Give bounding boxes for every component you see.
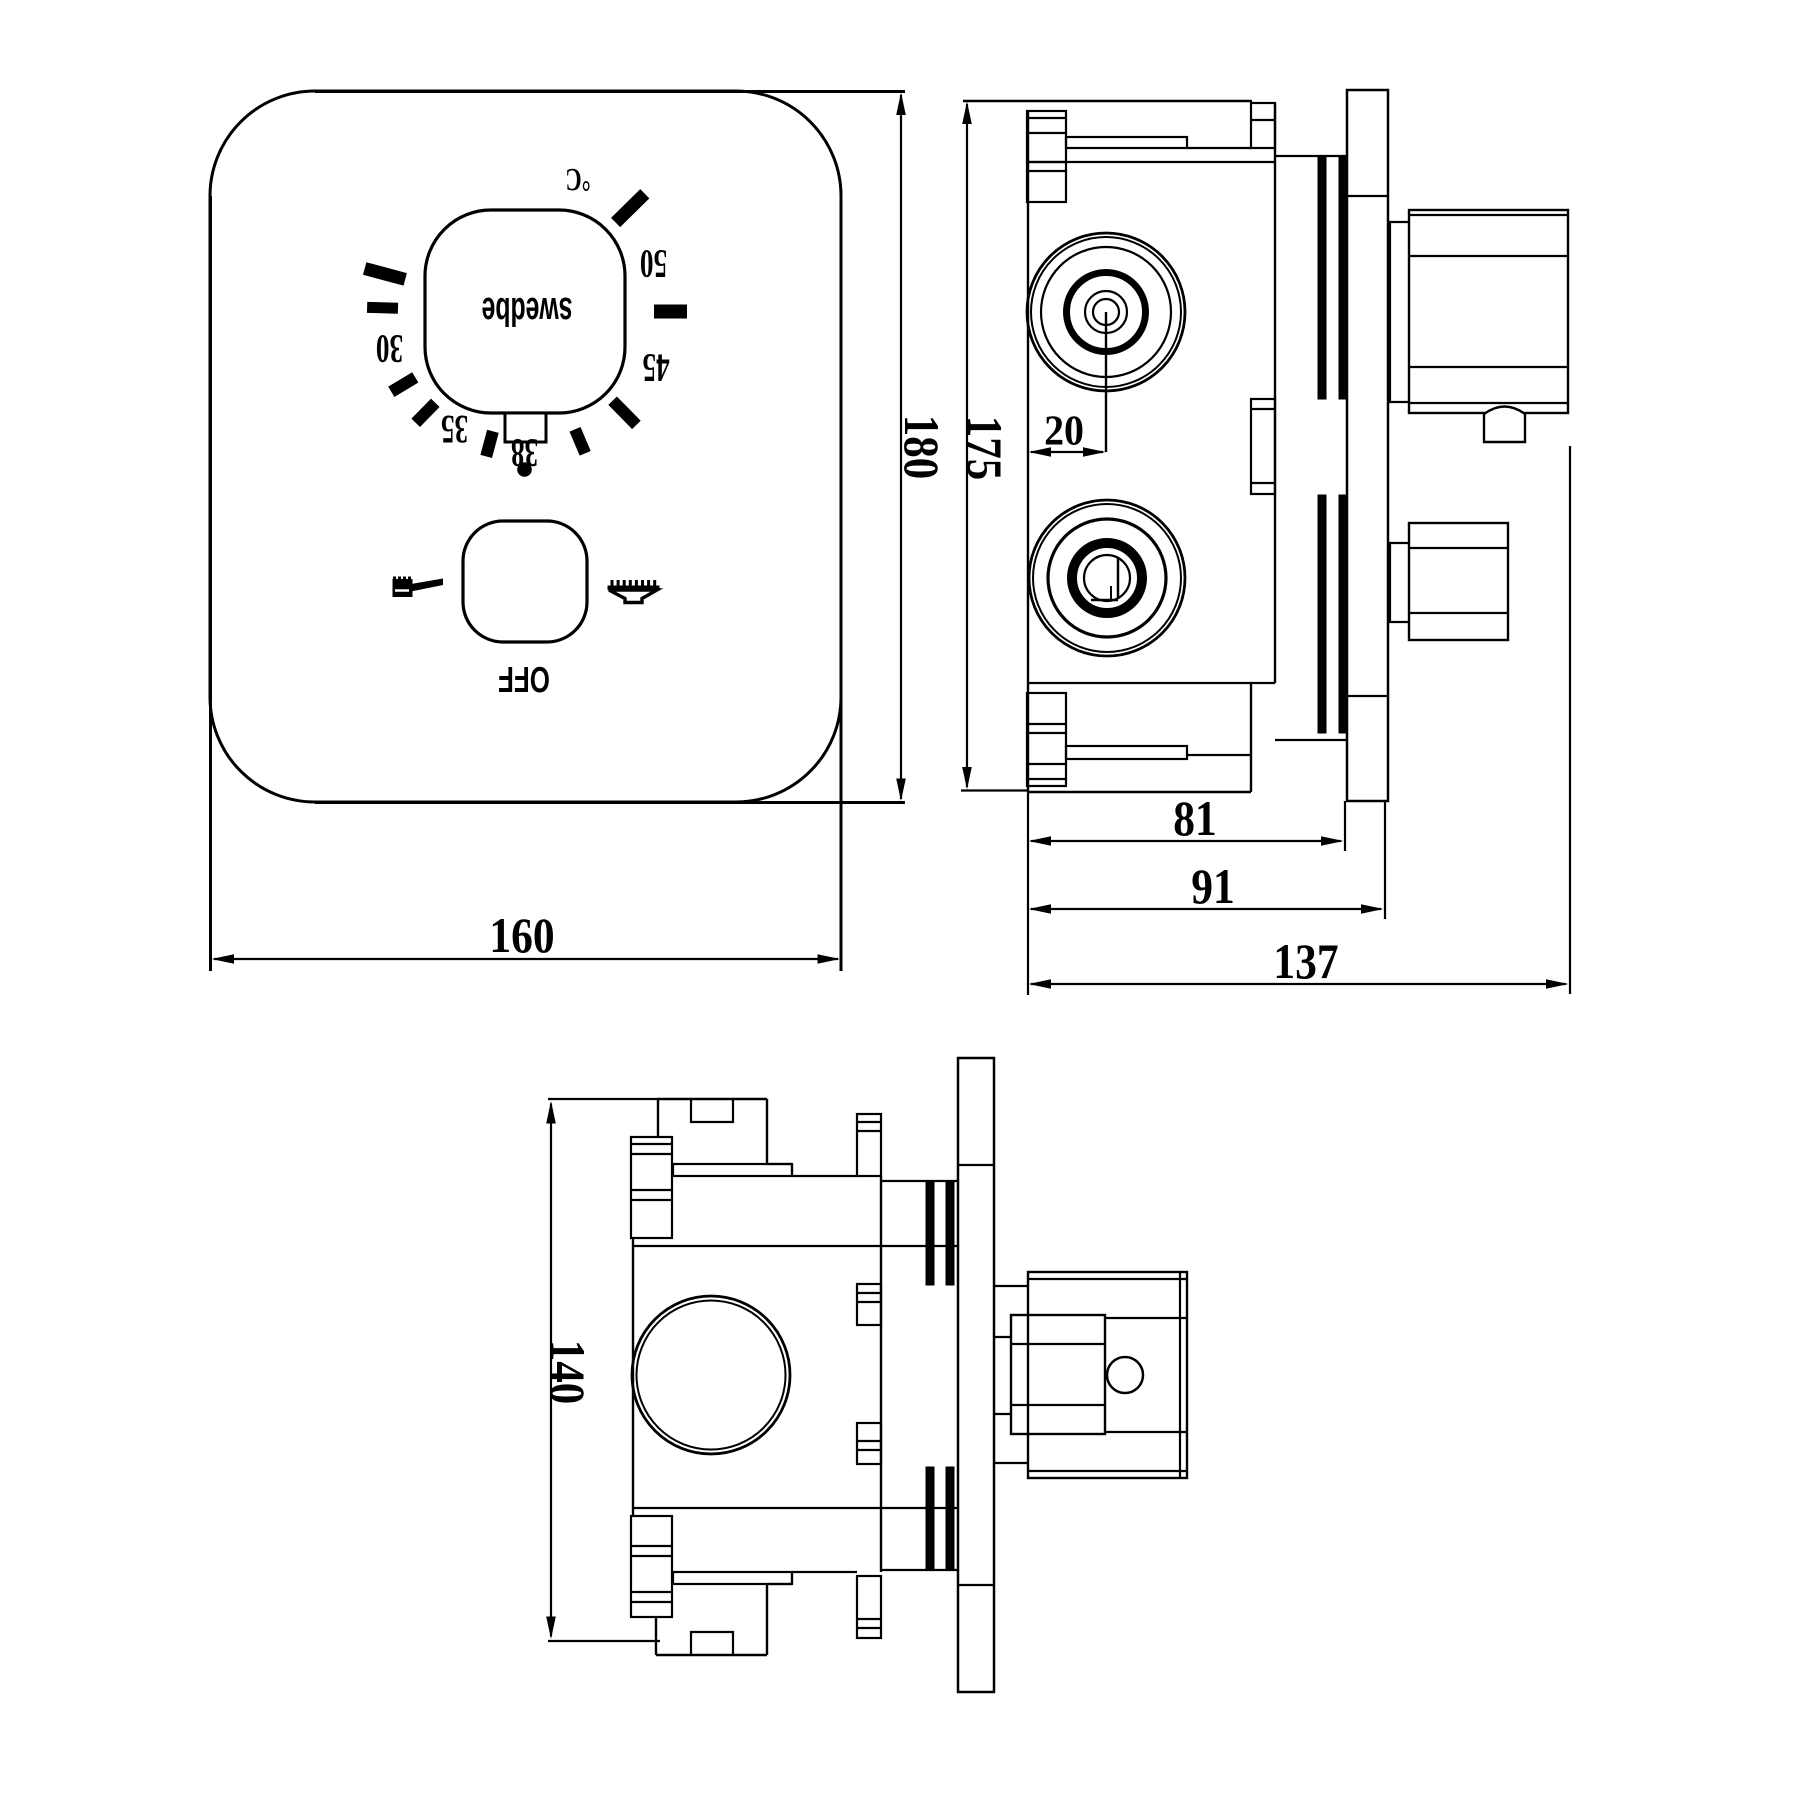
- svg-text:175: 175: [956, 416, 1012, 480]
- svg-text:140: 140: [539, 1340, 595, 1404]
- svg-text:160: 160: [489, 908, 554, 963]
- svg-text:30: 30: [376, 326, 403, 369]
- svg-text:°C: °C: [565, 161, 590, 197]
- svg-text:137: 137: [1273, 934, 1338, 989]
- svg-text:180: 180: [893, 415, 949, 479]
- svg-text:38: 38: [511, 430, 538, 473]
- svg-text:35: 35: [441, 407, 468, 450]
- svg-text:swedbe: swedbe: [482, 288, 573, 332]
- svg-text:20: 20: [1044, 406, 1084, 453]
- svg-text:45: 45: [642, 345, 669, 388]
- svg-text:91: 91: [1191, 859, 1234, 914]
- svg-text:50: 50: [640, 241, 667, 284]
- svg-text:81: 81: [1173, 791, 1216, 846]
- svg-text:OFF: OFF: [498, 659, 550, 699]
